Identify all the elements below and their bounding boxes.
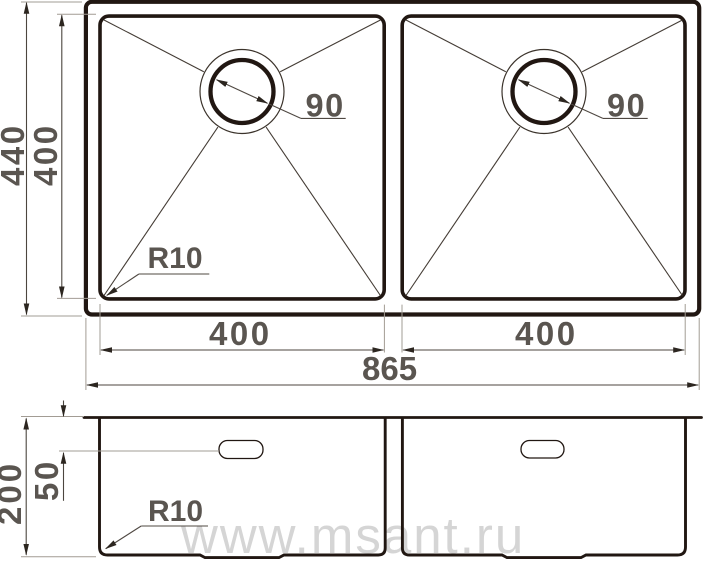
svg-text:R10: R10	[148, 242, 203, 275]
svg-text:90: 90	[607, 88, 646, 124]
svg-text:50: 50	[28, 459, 65, 501]
svg-text:200: 200	[0, 461, 28, 525]
svg-text:400: 400	[27, 123, 64, 186]
svg-text:R10: R10	[148, 495, 203, 528]
svg-text:865: 865	[362, 350, 417, 387]
svg-text:400: 400	[515, 315, 578, 352]
svg-text:400: 400	[209, 315, 272, 352]
svg-text:90: 90	[306, 88, 345, 124]
